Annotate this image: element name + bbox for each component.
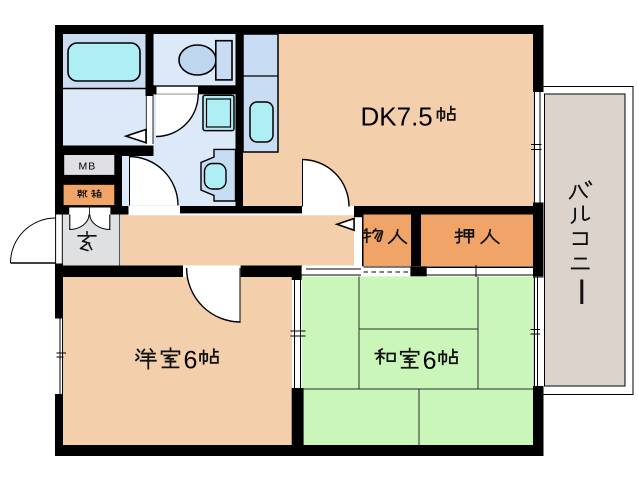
svg-text:DK7.5: DK7.5 [361, 102, 433, 132]
svg-text:6: 6 [184, 347, 198, 375]
svg-text:MB: MB [79, 161, 97, 173]
svg-text:6: 6 [423, 347, 437, 375]
